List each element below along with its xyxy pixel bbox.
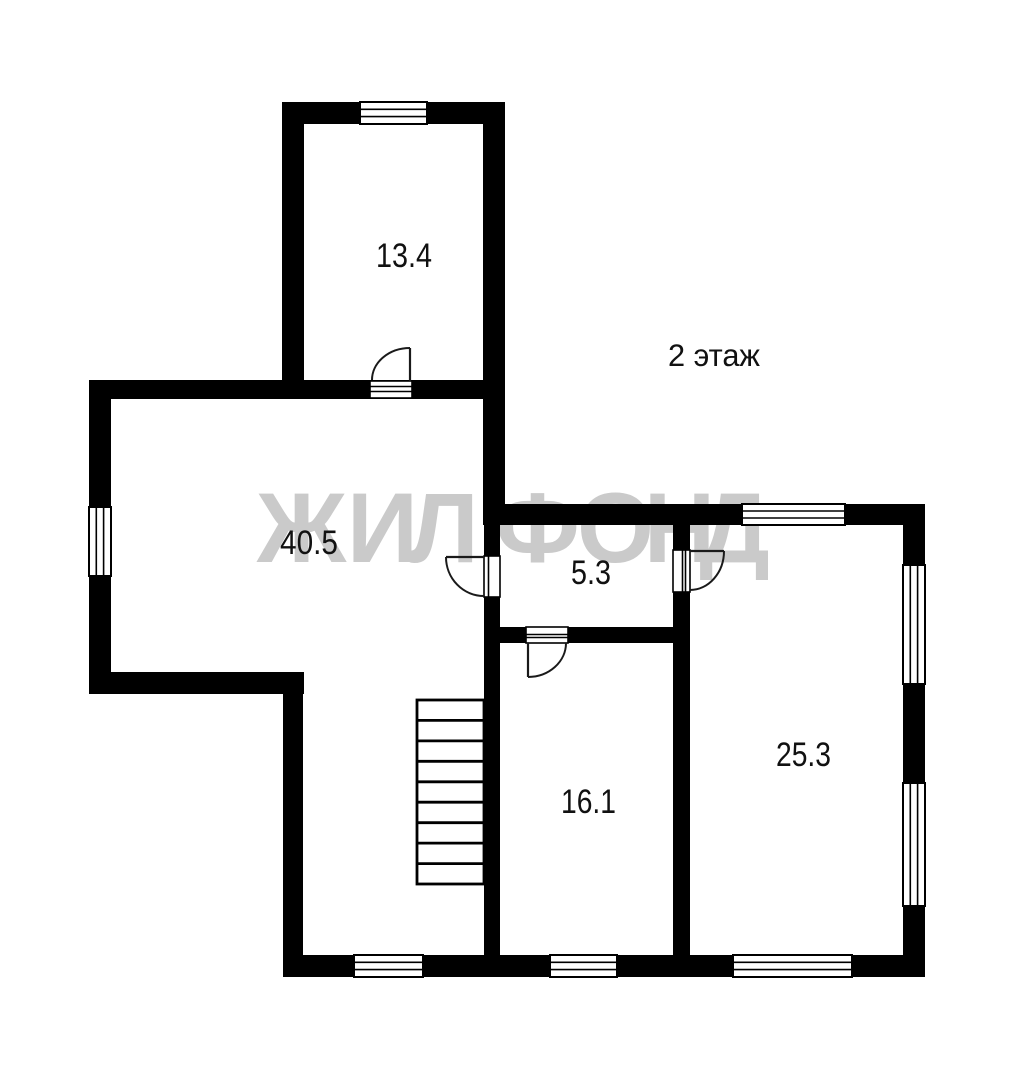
svg-text:И: И [347, 472, 418, 583]
svg-text:25.3: 25.3 [776, 736, 831, 774]
svg-text:Л: Л [409, 472, 478, 583]
svg-text:13.4: 13.4 [376, 237, 432, 275]
svg-text:Ф: Ф [495, 472, 580, 583]
svg-text:5.3: 5.3 [571, 554, 611, 592]
svg-text:40.5: 40.5 [280, 524, 338, 562]
svg-text:16.1: 16.1 [561, 783, 616, 821]
svg-text:2 этаж: 2 этаж [668, 337, 760, 373]
svg-text:Д: Д [699, 472, 770, 583]
